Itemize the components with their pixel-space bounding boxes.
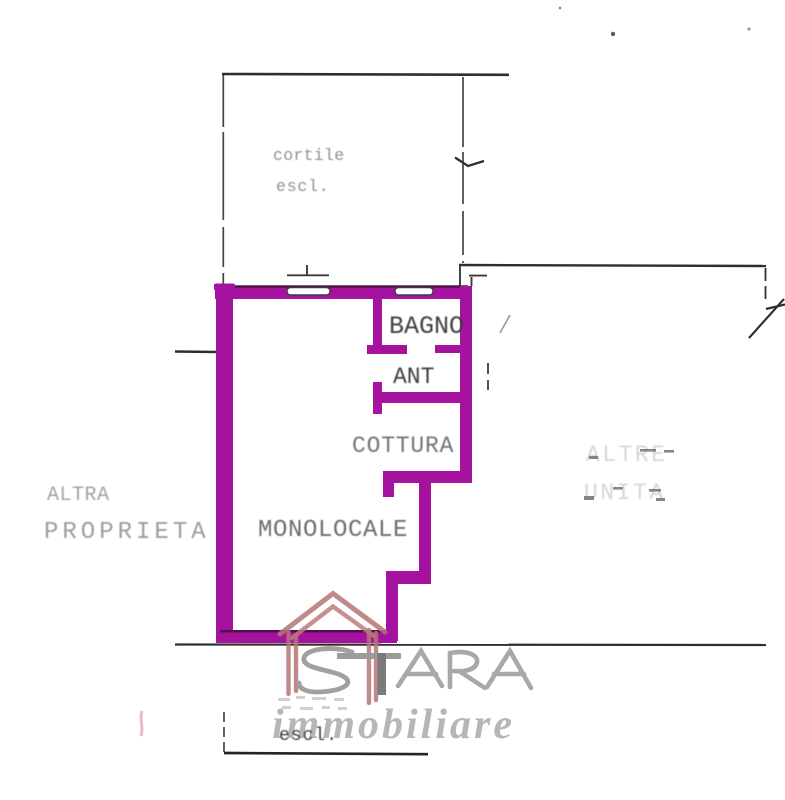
svg-text:ANT: ANT xyxy=(393,364,434,390)
svg-text:PROPRIETA: PROPRIETA xyxy=(44,519,210,546)
svg-text:escl.: escl. xyxy=(276,177,330,196)
svg-text:BAGNO: BAGNO xyxy=(389,312,464,341)
svg-text:UNITA: UNITA xyxy=(584,480,666,506)
svg-text:COTTURA: COTTURA xyxy=(352,433,454,459)
svg-text:cortile: cortile xyxy=(273,146,344,165)
svg-text:ALTRA: ALTRA xyxy=(47,484,110,507)
svg-text:escl.: escl. xyxy=(279,726,338,746)
svg-text:ALTRE: ALTRE xyxy=(586,442,668,468)
svg-text:MONOLOCALE: MONOLOCALE xyxy=(258,517,408,544)
